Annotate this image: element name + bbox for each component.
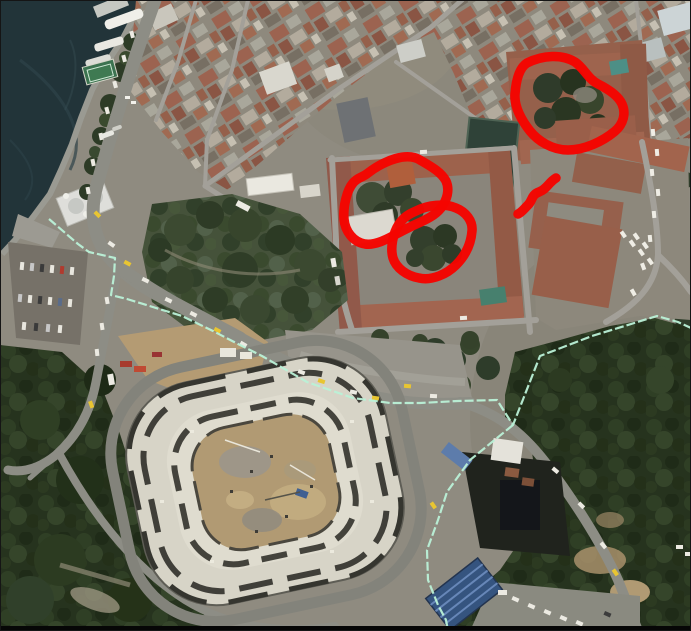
satellite-image xyxy=(0,0,691,631)
white-rooftop-building xyxy=(491,438,524,464)
west-parking-lot xyxy=(8,242,88,345)
satellite-map-view[interactable] xyxy=(0,0,691,631)
